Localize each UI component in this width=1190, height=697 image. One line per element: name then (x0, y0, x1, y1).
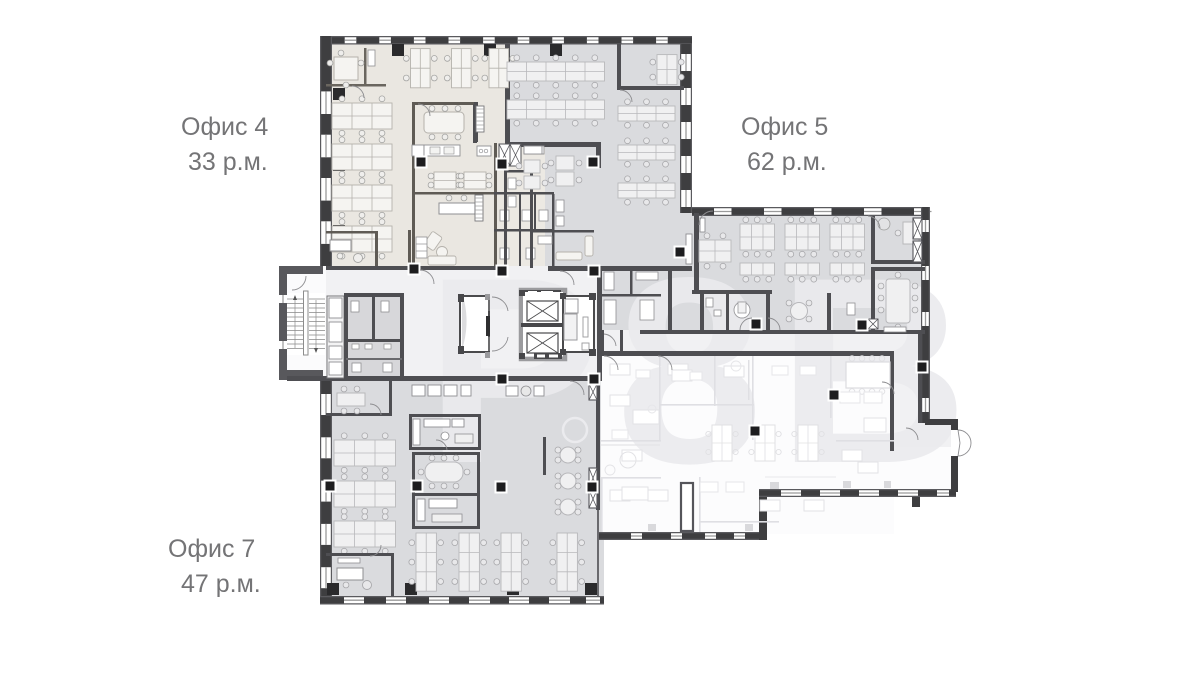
svg-text:62 р.м.: 62 р.м. (747, 148, 827, 176)
svg-text:33 р.м.: 33 р.м. (188, 148, 268, 176)
svg-text:Офис 4: Офис 4 (181, 113, 268, 141)
svg-text:Офис 5: Офис 5 (741, 113, 828, 141)
svg-text:47 р.м.: 47 р.м. (181, 570, 261, 598)
svg-text:Офис 7: Офис 7 (168, 535, 255, 563)
